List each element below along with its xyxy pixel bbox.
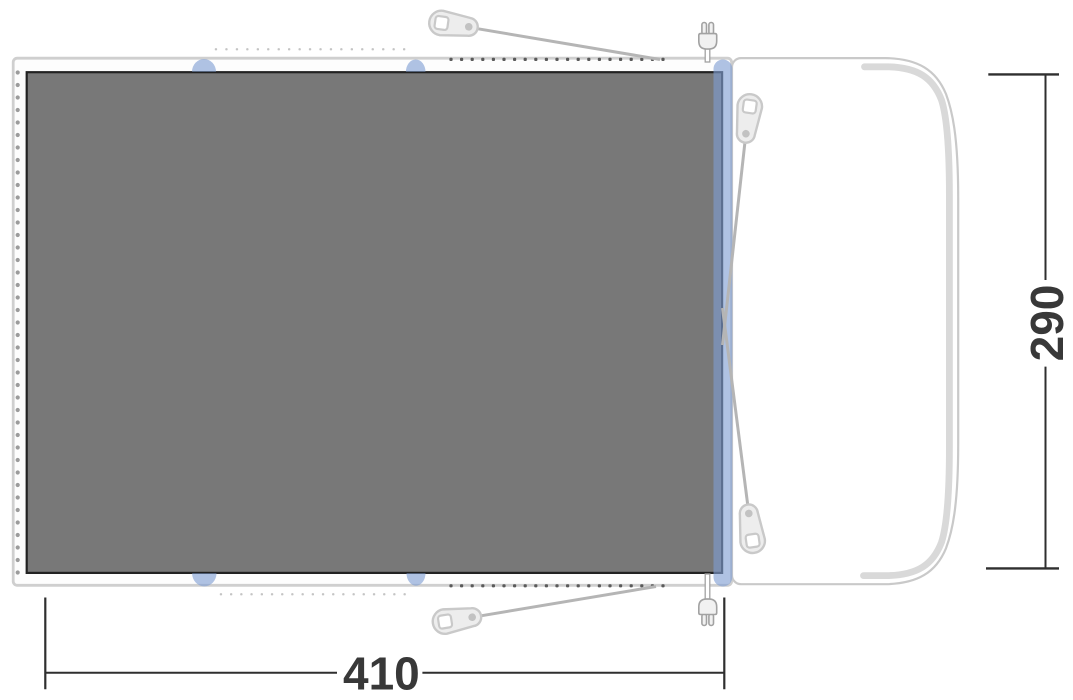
svg-text:290: 290: [1021, 285, 1073, 362]
svg-text:410: 410: [343, 647, 420, 699]
